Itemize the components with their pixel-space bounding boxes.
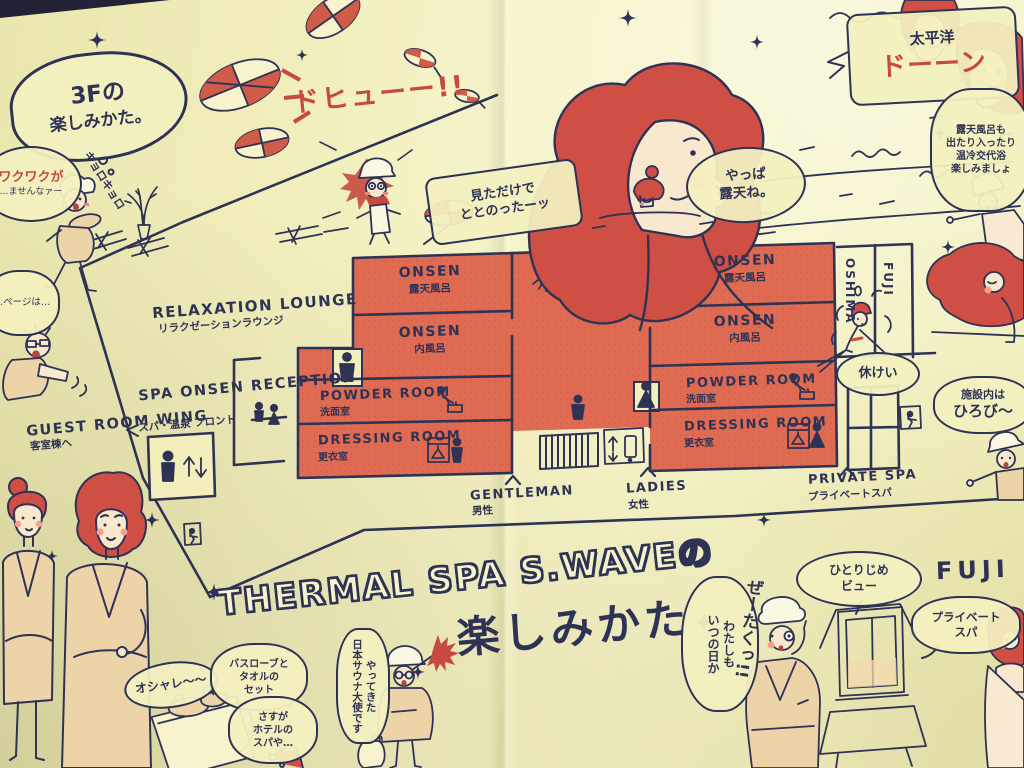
room-label-ladies-outdoor-onsen: ONSEN bbox=[705, 252, 786, 271]
room-label-ladies-indoor-onsen: ONSEN bbox=[705, 312, 786, 331]
room-label-mens-indoor-onsen-jp: 内風呂 bbox=[390, 340, 470, 358]
spacious-line2: ひろび〜 bbox=[953, 402, 1013, 422]
man-icon bbox=[572, 396, 584, 420]
robed-woman-character-2 bbox=[62, 472, 151, 768]
hotel-spa-thought-bubble: さすが ホテルの スパや… bbox=[228, 696, 318, 764]
room-label-ladies-dressing-jp: 更衣室 bbox=[684, 433, 715, 449]
room-label-mens-outdoor-onsen-jp: 露天風呂 bbox=[390, 280, 470, 298]
pacific-text: 太平洋 bbox=[909, 28, 955, 50]
bathing-tips-bubble: 露天風呂も 出たり入ったり 温冷交代浴 楽しみましょ bbox=[930, 88, 1024, 212]
elevator-room bbox=[148, 433, 215, 500]
entrance-label-ladies-jp: 女性 bbox=[628, 496, 650, 512]
robed-woman-character bbox=[3, 478, 54, 760]
parasol-icon bbox=[299, 0, 368, 47]
don-text: ドーーン bbox=[879, 46, 987, 85]
wakuwaku-text-rest: …ませんなァー bbox=[0, 187, 62, 199]
spacious-bubble: 施設内は ひろび〜 bbox=[933, 376, 1024, 434]
room-label-ladies-outdoor-onsen-jp: 露天風呂 bbox=[705, 269, 785, 287]
emergency-exit-icon bbox=[900, 406, 921, 429]
room-label-mens-indoor-onsen: ONSEN bbox=[390, 323, 471, 342]
parasol-icon bbox=[233, 124, 292, 163]
room-label-oshima: OSHIMA bbox=[843, 258, 857, 363]
room-label-ladies-indoor-onsen-jp: 内風呂 bbox=[705, 329, 785, 347]
private-spa-grid bbox=[848, 386, 899, 470]
room-label-mens-outdoor-onsen: ONSEN bbox=[390, 263, 471, 282]
blown-away-character bbox=[320, 142, 412, 244]
entrance-label-gentleman-jp: 男性 bbox=[472, 502, 494, 518]
private-spa-handwritten-bubble: プライベート スパ bbox=[911, 596, 1021, 654]
stairs-icon bbox=[540, 433, 598, 469]
partial-page-bubble: …ページは… bbox=[0, 270, 60, 336]
spa-floor-map: 3Fの 楽しみかた。 ワクワクが …ませんなァー キョロキョロ …ページは… ド… bbox=[0, 0, 1024, 768]
parasol-icon bbox=[193, 49, 287, 121]
fuji-handwritten-text: FUJI bbox=[936, 555, 1011, 586]
exclusive-view-bubble: ひとりじめ ビュー bbox=[796, 551, 922, 607]
wakuwaku-text-red: ワクワクが bbox=[0, 170, 64, 187]
reception-staff-icon bbox=[255, 403, 279, 424]
sauna-ambassador-bubble: やってきた 日本サウナ大使です bbox=[336, 628, 390, 744]
elevator-icon bbox=[604, 428, 644, 464]
plant-icon bbox=[125, 187, 157, 239]
room-label-ladies-powder-jp: 洗面室 bbox=[686, 389, 717, 405]
gentleman-arrow-icon bbox=[506, 476, 520, 484]
spacious-line1: 施設内は bbox=[961, 388, 1005, 402]
room-label-mens-powder-jp: 洗面室 bbox=[320, 402, 351, 418]
room-label-mens-dressing-jp: 更衣室 bbox=[318, 447, 349, 463]
room-label-fuji: FUJI bbox=[881, 262, 895, 352]
entrance-label-ladies: LADIES bbox=[626, 478, 688, 496]
deck-chairs-icon-2 bbox=[276, 226, 348, 244]
page-fragment-text: …ページは… bbox=[0, 297, 50, 309]
spacious-comment-character bbox=[967, 432, 1024, 500]
emergency-exit-icon bbox=[184, 523, 201, 545]
corner-bubble-line2: 楽しみかた。 bbox=[49, 105, 153, 138]
reclining-longhair-character bbox=[927, 243, 1024, 342]
